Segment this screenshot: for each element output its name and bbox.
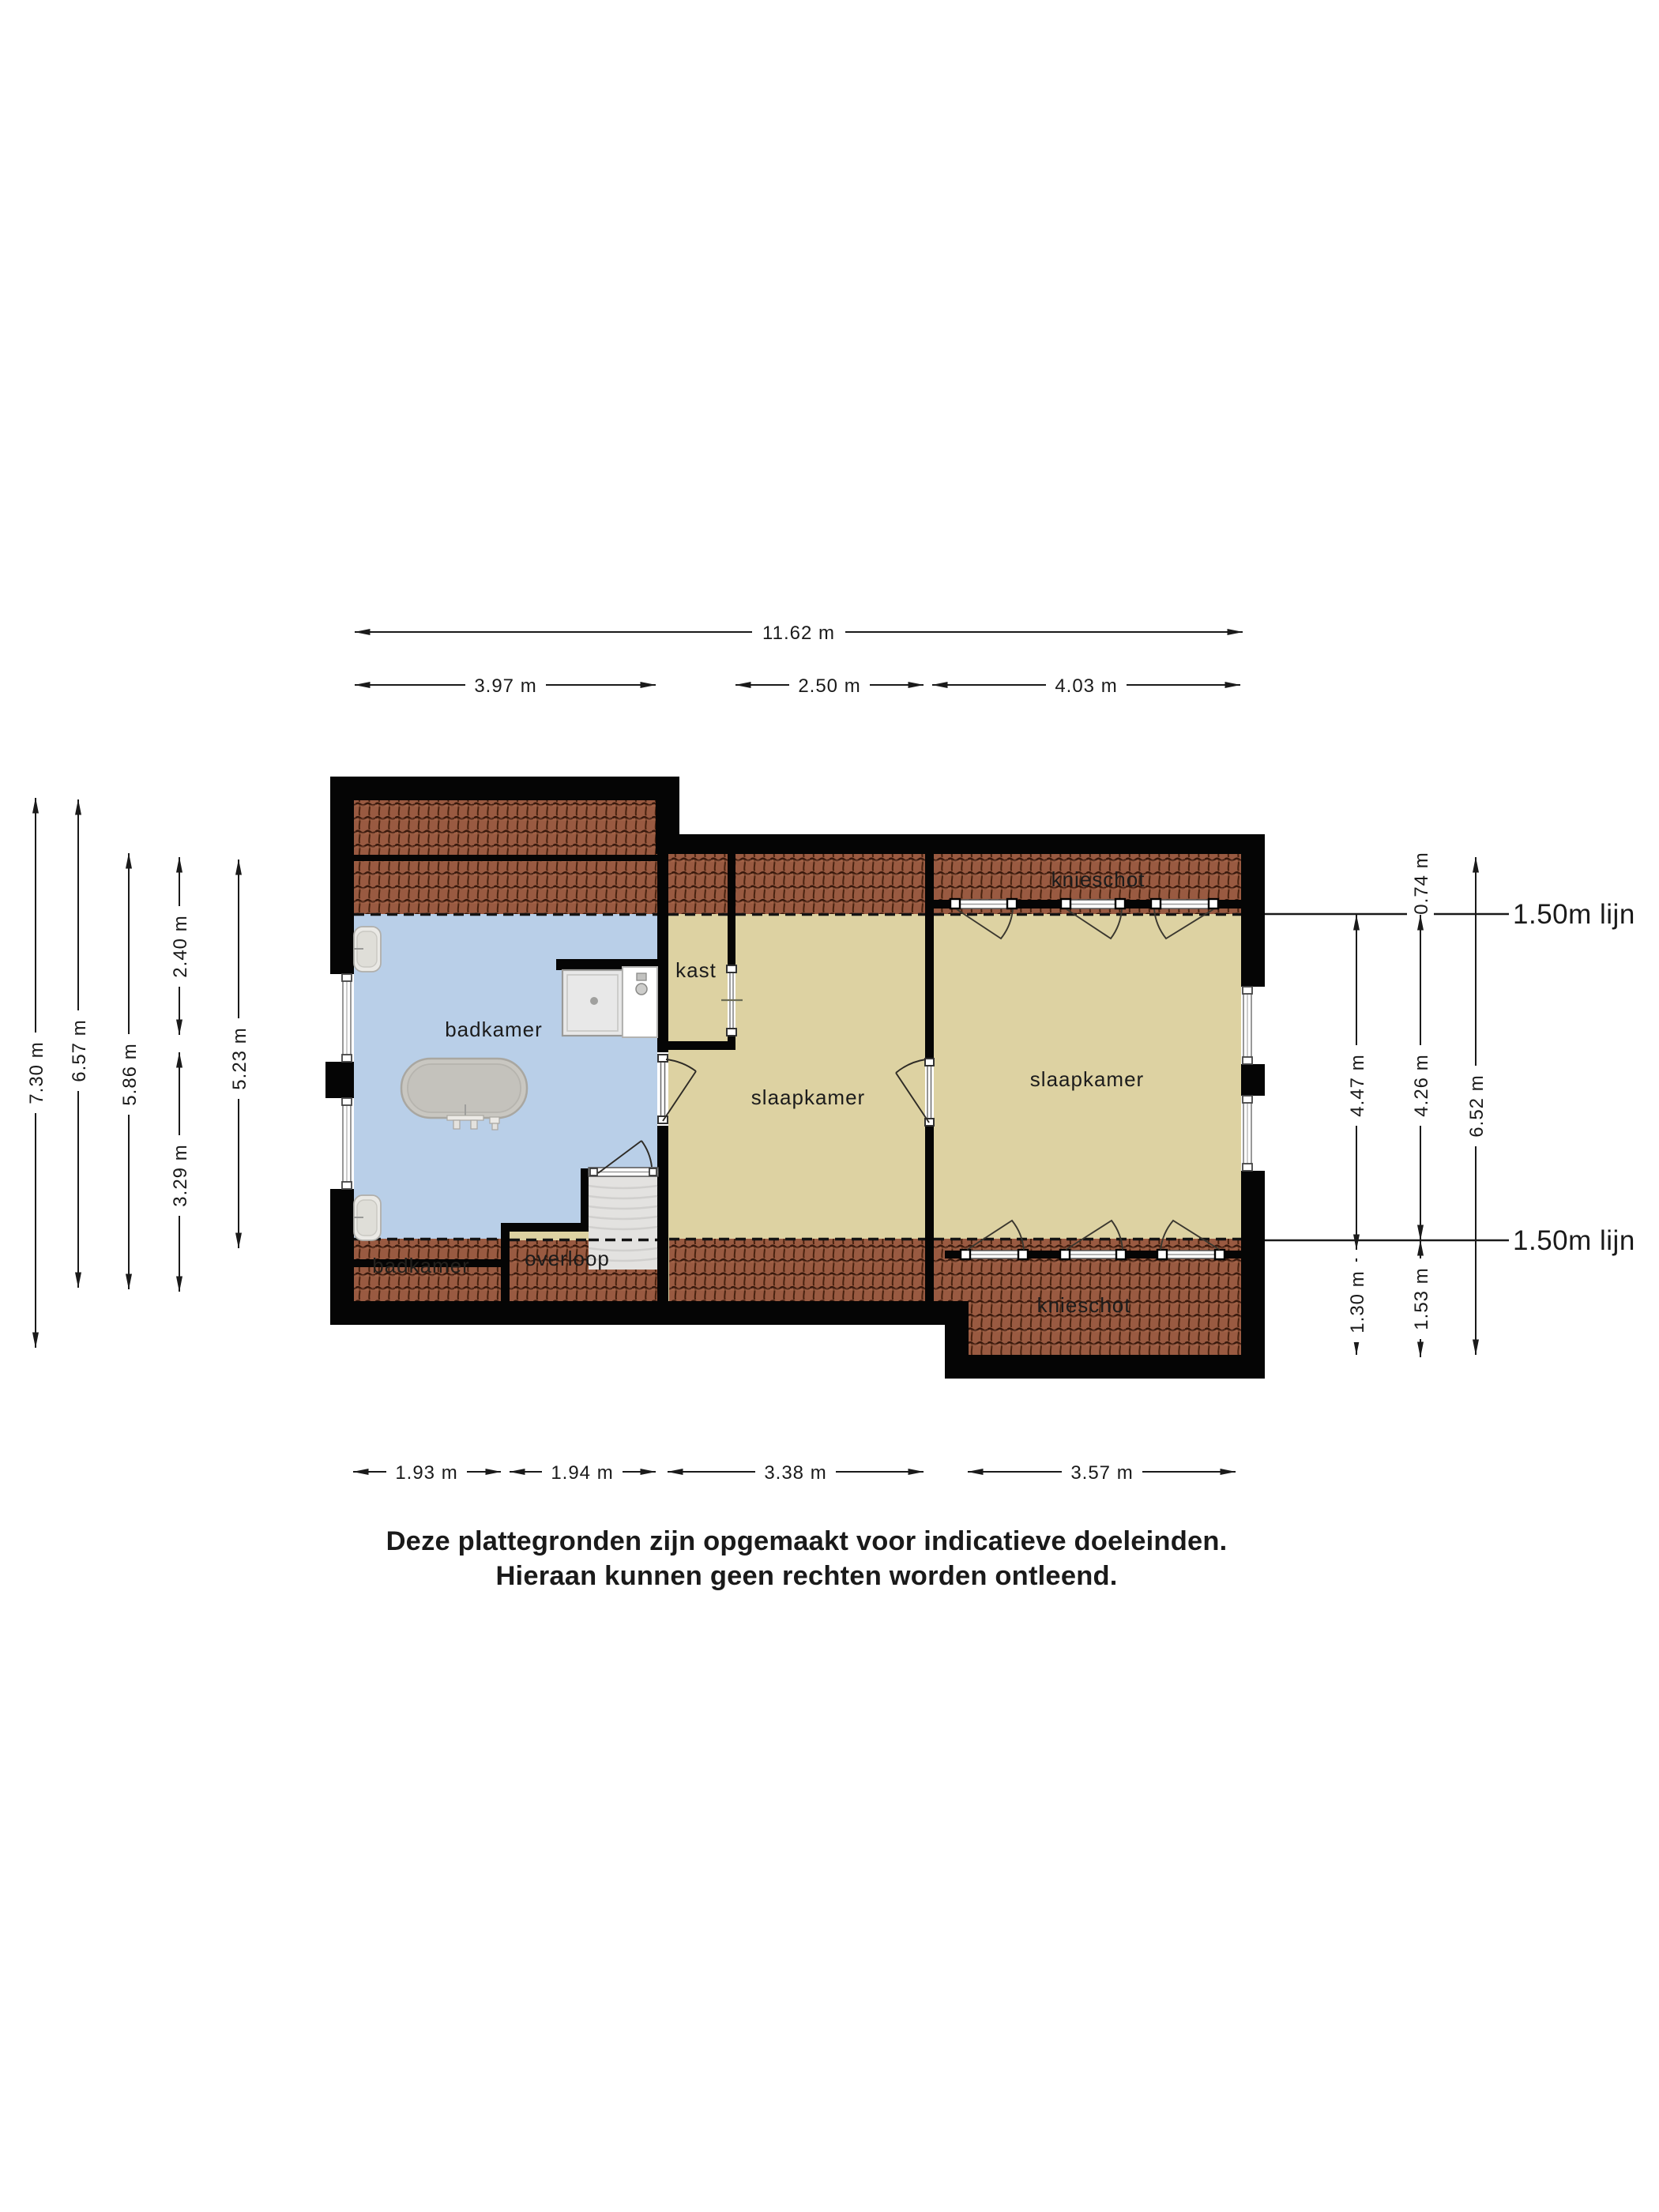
svg-text:slaapkamer: slaapkamer: [751, 1085, 865, 1109]
svg-text:3.29 m: 3.29 m: [170, 1144, 191, 1206]
svg-text:4.03 m: 4.03 m: [1055, 675, 1117, 697]
svg-text:knieschot: knieschot: [1051, 867, 1145, 891]
svg-text:6.57 m: 6.57 m: [69, 1019, 90, 1082]
svg-text:4.47 m: 4.47 m: [1347, 1054, 1368, 1116]
svg-text:4.26 m: 4.26 m: [1411, 1054, 1432, 1116]
svg-text:5.86 m: 5.86 m: [119, 1043, 141, 1105]
svg-text:overloop: overloop: [525, 1247, 610, 1270]
svg-text:1.93 m: 1.93 m: [395, 1462, 457, 1484]
svg-text:1.50m lijn: 1.50m lijn: [1513, 1225, 1635, 1256]
svg-text:knieschot: knieschot: [1037, 1293, 1131, 1317]
svg-text:6.52 m: 6.52 m: [1466, 1074, 1488, 1137]
svg-text:badkamer: badkamer: [445, 1018, 543, 1041]
svg-text:badkamer: badkamer: [372, 1254, 470, 1277]
svg-text:kast: kast: [675, 958, 717, 982]
svg-text:2.40 m: 2.40 m: [170, 915, 191, 977]
svg-text:11.62 m: 11.62 m: [762, 623, 835, 644]
svg-text:1.50m lijn: 1.50m lijn: [1513, 899, 1635, 930]
svg-text:3.38 m: 3.38 m: [764, 1462, 826, 1484]
svg-text:1.30 m: 1.30 m: [1347, 1270, 1368, 1333]
svg-text:0.74 m: 0.74 m: [1411, 852, 1432, 914]
svg-text:1.94 m: 1.94 m: [551, 1462, 613, 1484]
svg-text:1.53 m: 1.53 m: [1411, 1267, 1432, 1330]
svg-text:3.97 m: 3.97 m: [474, 675, 536, 697]
svg-text:Hieraan kunnen geen rechten wo: Hieraan kunnen geen rechten worden ontle…: [495, 1561, 1117, 1591]
svg-text:2.50 m: 2.50 m: [798, 675, 860, 697]
svg-text:slaapkamer: slaapkamer: [1030, 1067, 1144, 1091]
svg-text:3.57 m: 3.57 m: [1070, 1462, 1133, 1484]
svg-text:7.30 m: 7.30 m: [26, 1041, 47, 1104]
svg-text:Deze plattegronden zijn opgema: Deze plattegronden zijn opgemaakt voor i…: [386, 1526, 1228, 1556]
svg-text:5.23 m: 5.23 m: [229, 1027, 250, 1089]
